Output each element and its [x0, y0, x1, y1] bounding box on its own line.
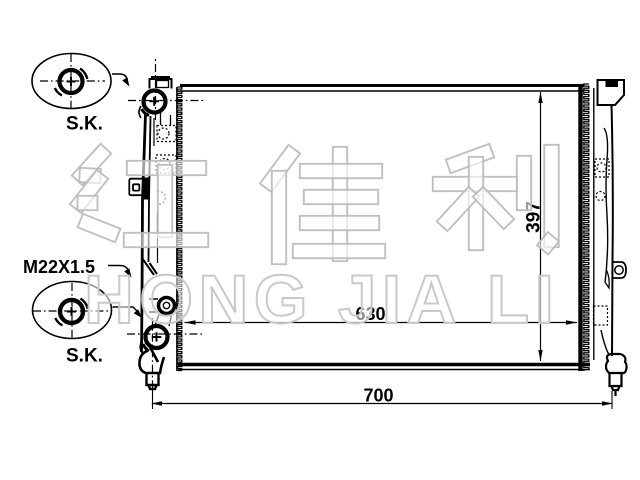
svg-text:S.K.: S.K.	[66, 114, 103, 135]
svg-text:700: 700	[363, 386, 393, 406]
svg-text:S.K.: S.K.	[66, 346, 103, 367]
svg-text:LI: LI	[487, 261, 559, 338]
svg-text:JIA: JIA	[338, 261, 462, 338]
svg-text:HONG: HONG	[84, 261, 313, 338]
